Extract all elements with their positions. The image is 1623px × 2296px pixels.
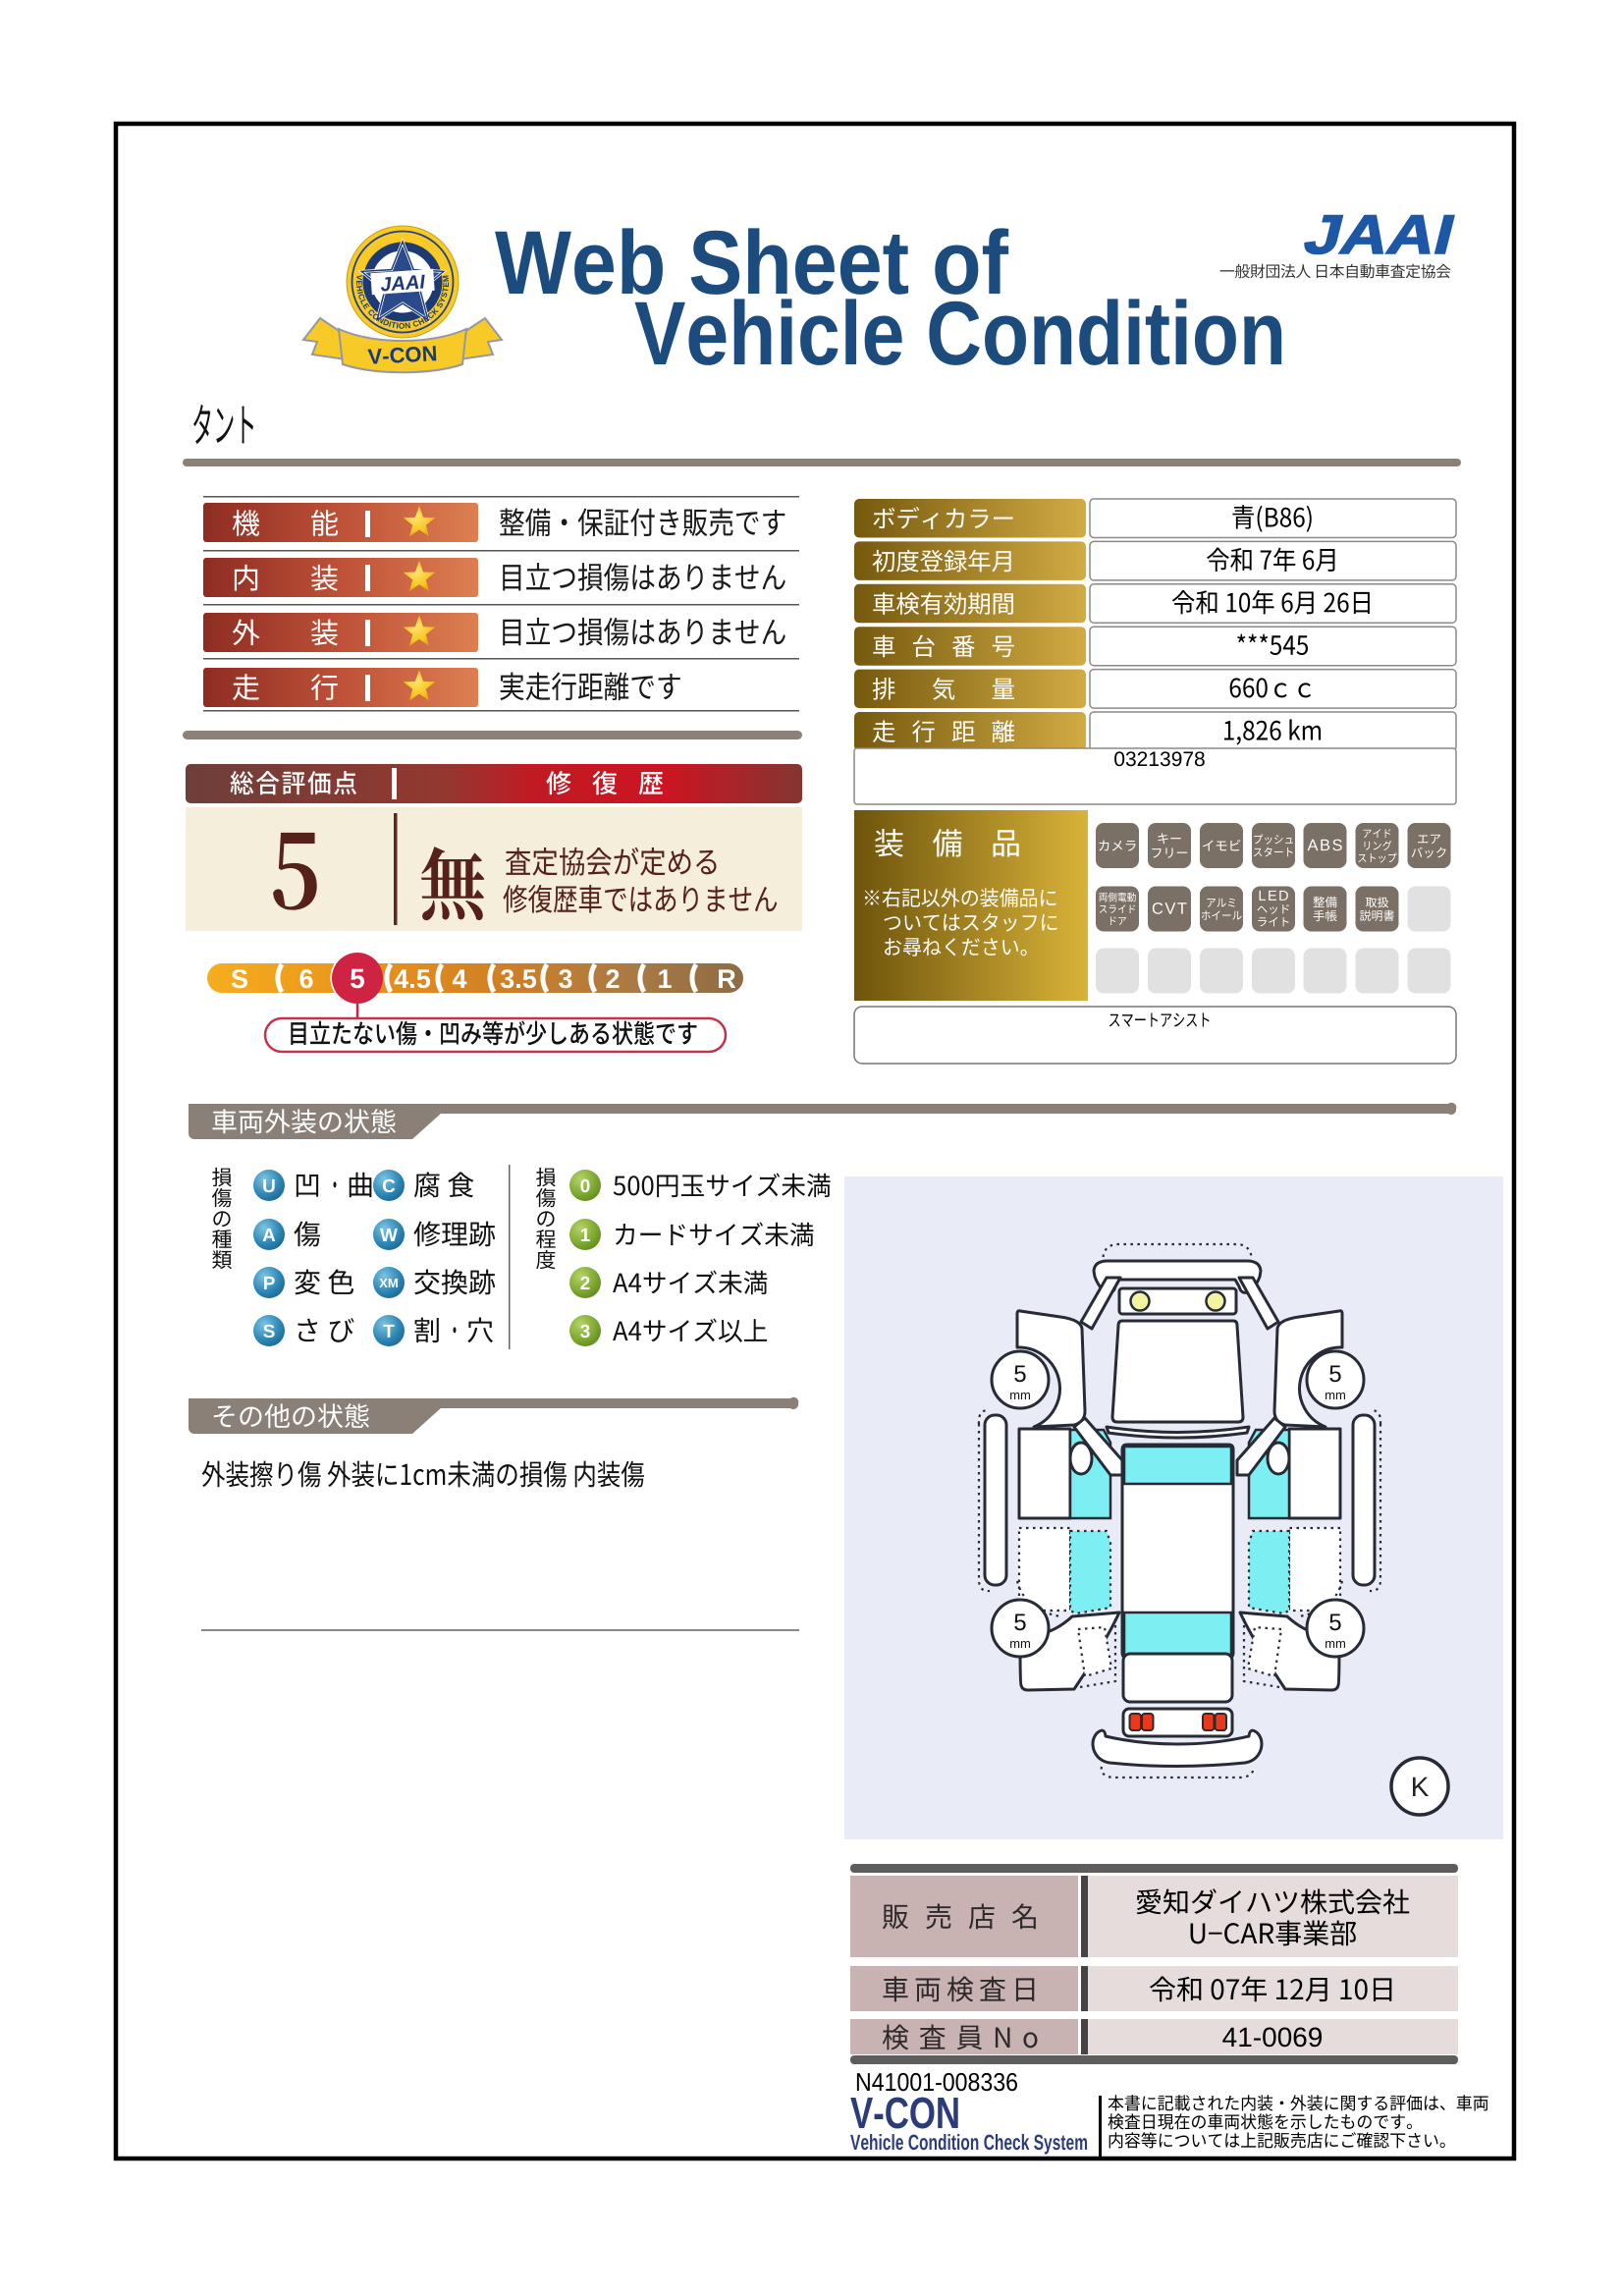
svg-text:JAAI: JAAI	[1298, 205, 1460, 266]
